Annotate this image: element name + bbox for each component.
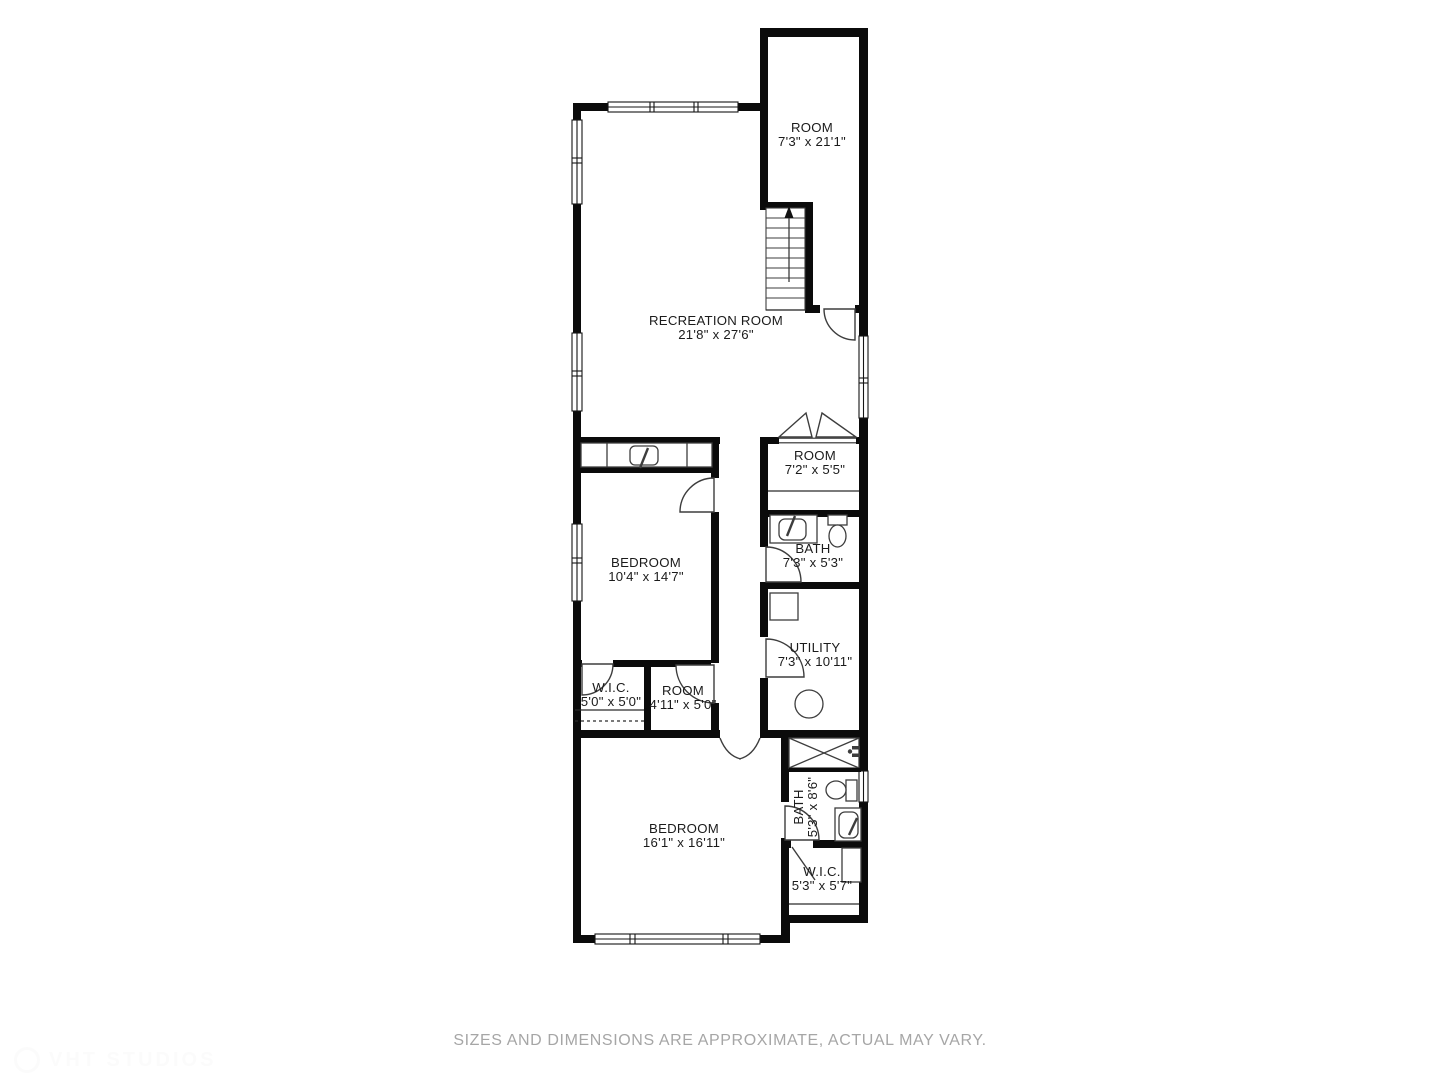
window	[608, 102, 738, 112]
svg-text:W.I.C.: W.I.C.	[592, 680, 629, 695]
wall-segment	[781, 915, 868, 923]
window	[859, 336, 868, 418]
toilet-tank-icon	[828, 515, 847, 525]
vendor-logo-icon	[14, 1047, 40, 1073]
walls-layer	[573, 28, 868, 943]
bifold-door-icon	[779, 413, 812, 437]
vendor-watermark-text: VHT STUDIOS	[49, 1049, 216, 1072]
door-swing	[720, 738, 741, 759]
wall-segment	[855, 305, 868, 313]
room-label-middle-room: ROOM 7'2" x 5'5"	[785, 448, 845, 477]
door-opening	[720, 730, 760, 738]
svg-text:7'3" x 5'3": 7'3" x 5'3"	[783, 555, 843, 570]
svg-text:10'4" x 14'7": 10'4" x 14'7"	[608, 569, 684, 584]
room-label-recreation-room: RECREATION ROOM 21'8" x 27'6"	[649, 313, 783, 342]
svg-text:7'3" x 10'11": 7'3" x 10'11"	[778, 654, 853, 669]
window	[859, 771, 868, 802]
svg-text:BEDROOM: BEDROOM	[649, 821, 719, 836]
room-label-upper-bedroom: BEDROOM 10'4" x 14'7"	[608, 555, 684, 584]
svg-text:16'1" x 16'11": 16'1" x 16'11"	[643, 835, 725, 850]
wall-segment	[859, 28, 868, 336]
svg-text:BEDROOM: BEDROOM	[611, 555, 681, 570]
toilet-tank-icon	[846, 780, 857, 801]
wall-segment	[781, 840, 791, 848]
svg-text:5'3" x 8'6": 5'3" x 8'6"	[805, 777, 820, 837]
wall-segment	[760, 28, 768, 210]
svg-text:W.I.C.: W.I.C.	[803, 864, 840, 879]
wall-segment	[760, 437, 779, 444]
washer-icon	[795, 690, 823, 718]
svg-text:7'2" x 5'5": 7'2" x 5'5"	[785, 462, 845, 477]
wall-segment	[760, 582, 868, 589]
wall-segment	[781, 915, 790, 943]
room-label-lower-bedroom: BEDROOM 16'1" x 16'11"	[643, 821, 725, 850]
svg-text:UTILITY: UTILITY	[790, 640, 841, 655]
window	[595, 934, 760, 944]
wall-segment	[805, 305, 820, 313]
wall-segment	[760, 28, 868, 37]
staircase	[766, 206, 805, 310]
wall-segment	[576, 467, 719, 473]
svg-text:5'0" x 5'0": 5'0" x 5'0"	[581, 694, 641, 709]
svg-text:ROOM: ROOM	[662, 683, 704, 698]
toilet-bowl-icon	[826, 781, 846, 799]
wall-segment	[856, 437, 868, 444]
wall-segment	[573, 103, 581, 943]
door-swing	[739, 738, 760, 759]
toilet-bowl-icon	[829, 525, 846, 547]
room-label-utility: UTILITY 7'3" x 10'11"	[778, 640, 853, 669]
svg-text:BATH: BATH	[795, 541, 830, 556]
room-label-top-room: ROOM 7'3" x 21'1"	[778, 120, 846, 149]
water-heater-icon	[770, 593, 798, 620]
svg-text:21'8" x 27'6": 21'8" x 27'6"	[678, 327, 754, 342]
svg-text:ROOM: ROOM	[791, 120, 833, 135]
svg-text:5'3" x 5'7": 5'3" x 5'7"	[792, 878, 852, 893]
floor-plan-drawing: ROOM 7'3" x 21'1" RECREATION ROOM 21'8" …	[0, 0, 1440, 1080]
wall-segment	[859, 418, 868, 771]
svg-text:7'3" x 21'1": 7'3" x 21'1"	[778, 134, 846, 149]
floor-plan-page: ROOM 7'3" x 21'1" RECREATION ROOM 21'8" …	[0, 0, 1440, 1080]
door-opening	[791, 840, 813, 848]
closet-shelf	[842, 848, 861, 882]
wall-segment	[805, 202, 813, 313]
window	[572, 120, 582, 204]
svg-text:BATH: BATH	[791, 789, 806, 824]
windows-layer	[572, 102, 868, 944]
window	[572, 333, 582, 411]
svg-text:ROOM: ROOM	[794, 448, 836, 463]
door-swing	[680, 478, 714, 512]
vendor-watermark: VHT STUDIOS	[14, 1047, 216, 1073]
bifold-door-icon	[816, 413, 856, 437]
svg-text:RECREATION ROOM: RECREATION ROOM	[649, 313, 783, 328]
window	[572, 524, 582, 601]
svg-text:4'11" x 5'0": 4'11" x 5'0"	[649, 697, 716, 712]
door-swing	[824, 309, 855, 340]
